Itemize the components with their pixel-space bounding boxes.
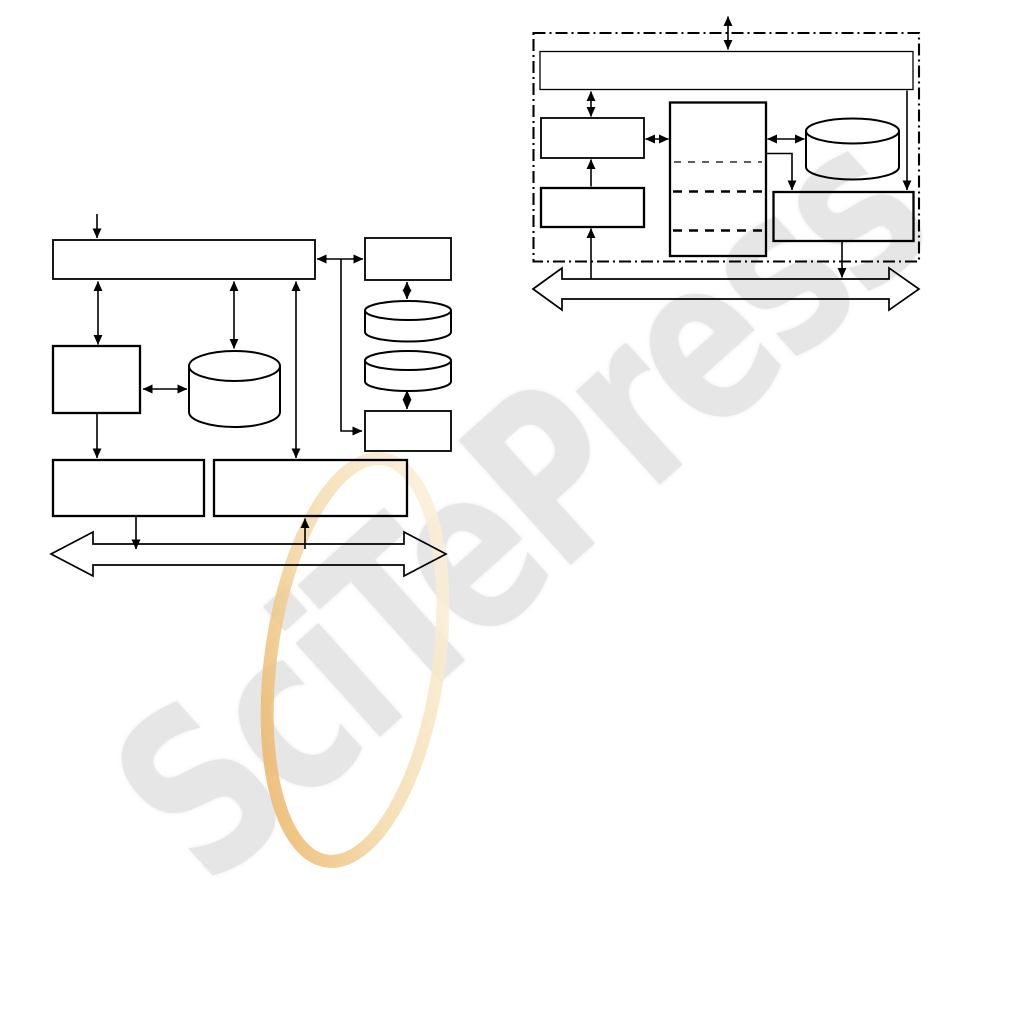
right-cylinder-1 (365, 301, 451, 342)
top-wide-box (540, 52, 913, 90)
center-partitioned-box (670, 103, 766, 257)
document-page: SciTePress (0, 0, 1012, 1012)
branch-to-right-bottom-box (341, 260, 362, 432)
main-cylinder (189, 351, 280, 427)
right-bottom-box (365, 411, 451, 451)
figure-canvas (0, 0, 1012, 1012)
top-wide-box (53, 240, 315, 279)
bottom-right-box (774, 192, 914, 241)
left-architecture-diagram (51, 214, 451, 576)
right-top-box (365, 238, 451, 280)
left-box-2 (541, 188, 644, 227)
left-box-1 (541, 118, 644, 158)
right-architecture-diagram (533, 17, 919, 311)
left-square-box (53, 346, 140, 413)
right-cylinder (806, 119, 899, 180)
right-cylinder-2 (365, 351, 451, 391)
bottom-right-box (214, 460, 407, 516)
connector-centerbox-bottombox (767, 154, 793, 191)
bottom-left-box (53, 460, 204, 516)
bus-double-arrow (51, 532, 446, 576)
